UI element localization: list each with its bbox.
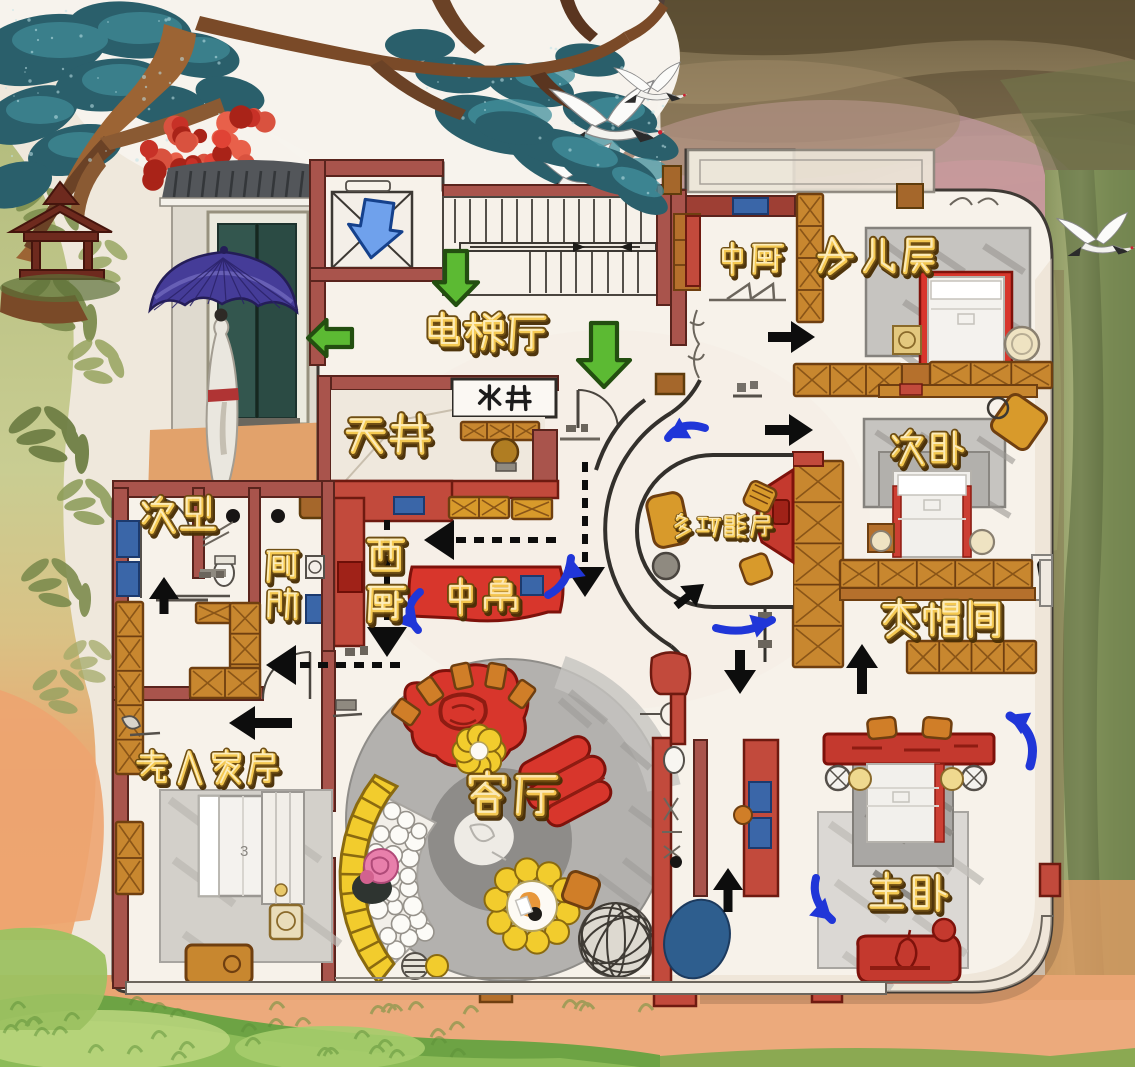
- svg-text:3: 3: [240, 843, 248, 860]
